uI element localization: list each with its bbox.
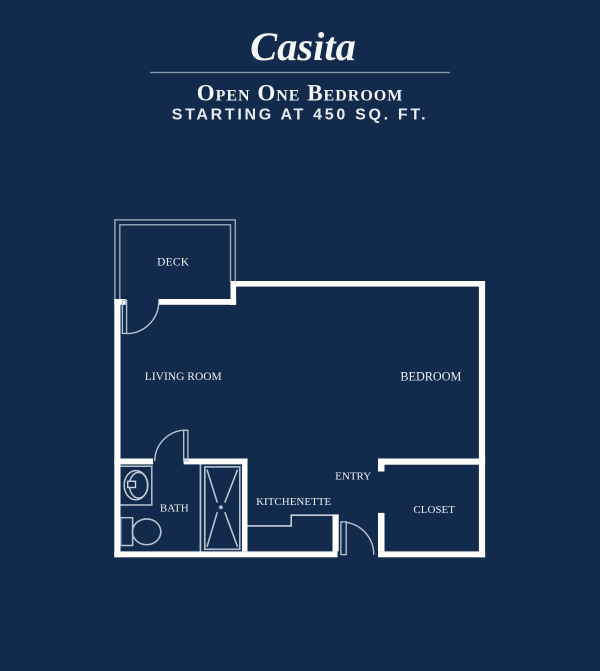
svg-text:LIVING ROOM: LIVING ROOM [145, 371, 222, 383]
svg-text:KITCHENETTE: KITCHENETTE [256, 496, 331, 508]
svg-text:DECK: DECK [157, 257, 190, 269]
svg-text:STARTING AT 450 SQ. FT.: STARTING AT 450 SQ. FT. [172, 107, 429, 124]
svg-text:BATH: BATH [160, 503, 189, 515]
svg-text:CLOSET: CLOSET [413, 504, 455, 516]
svg-text:ENTRY: ENTRY [335, 470, 371, 482]
svg-text:Open One Bedroom: Open One Bedroom [197, 81, 404, 106]
svg-text:BEDROOM: BEDROOM [400, 370, 461, 384]
svg-text:Casita: Casita [250, 24, 356, 69]
